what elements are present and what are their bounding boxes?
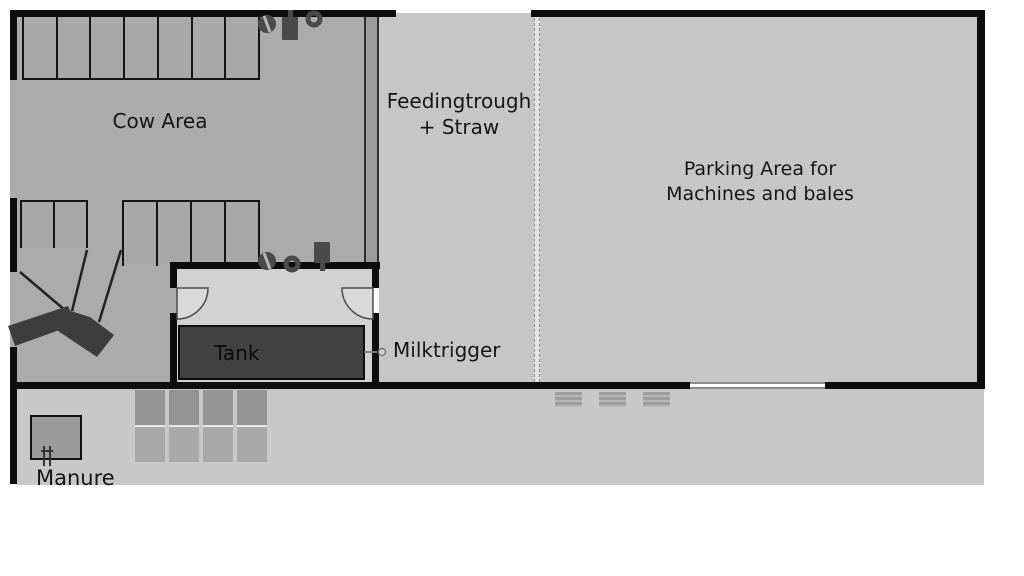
stall-cell xyxy=(224,17,258,78)
feeding-area-label-line1: Feedingtrough xyxy=(379,88,539,114)
parking-area-label-line2: Machines and bales xyxy=(590,182,930,207)
stall-cell xyxy=(191,17,225,78)
bale-col xyxy=(237,390,267,462)
parking-area-label: Parking Area for Machines and bales xyxy=(590,157,930,206)
stall-cell xyxy=(156,202,190,266)
stall-cell xyxy=(157,17,191,78)
bale-stack-strip xyxy=(135,390,267,462)
outer-wall-left-lower xyxy=(10,347,17,484)
tank-room-right-wall xyxy=(372,313,379,383)
milk-tank: Tank xyxy=(178,325,365,380)
manure-pit xyxy=(30,415,82,460)
feeding-area-label: Feedingtrough + Straw xyxy=(379,88,539,140)
feeding-area-label-line2: + Straw xyxy=(379,114,539,140)
outer-wall-left-middle xyxy=(10,198,17,272)
parking-boundary-dashed-line xyxy=(534,13,540,382)
outer-wall-top-right xyxy=(531,10,985,17)
sliding-door-opening xyxy=(690,382,825,389)
stall-row-bottom-right xyxy=(122,200,260,266)
stall-cell xyxy=(124,202,156,266)
floor-plan: Tank Cow Area Feedingtrough + Straw Park… xyxy=(0,0,1024,576)
outer-wall-bottom-left xyxy=(10,382,690,389)
milktrigger-label: Milktrigger xyxy=(393,337,501,363)
stall-row-top xyxy=(22,17,260,80)
bale-col xyxy=(203,390,233,462)
step-rect xyxy=(555,392,582,407)
outer-wall-top-left xyxy=(10,10,396,17)
outer-wall-left-upper xyxy=(10,10,17,80)
tank-room-top-wall xyxy=(170,262,380,269)
stall-cell xyxy=(224,202,258,266)
parking-markers xyxy=(555,392,670,407)
stall-row-bottom-left xyxy=(20,200,88,248)
outer-wall-right xyxy=(977,10,985,389)
outer-wall-bottom-right xyxy=(825,382,985,389)
step-rect xyxy=(599,392,626,407)
parking-area-label-line1: Parking Area for xyxy=(590,157,930,182)
stall-cell xyxy=(190,202,224,266)
stall-cell xyxy=(56,17,90,78)
feeding-area xyxy=(379,13,536,382)
bale-col xyxy=(169,390,199,462)
tank-room-right-wall xyxy=(372,262,379,288)
stall-cell xyxy=(53,202,86,248)
stall-cell xyxy=(89,17,123,78)
cow-area-label: Cow Area xyxy=(60,108,260,134)
stall-cell xyxy=(123,17,157,78)
stall-cell xyxy=(22,202,53,248)
stall-cell xyxy=(24,17,56,78)
step-rect xyxy=(643,392,670,407)
tank-room-left-wall xyxy=(170,313,177,383)
bale-col xyxy=(135,390,165,462)
tank-room-left-wall xyxy=(170,262,177,288)
tank-label: Tank xyxy=(180,340,259,366)
feeding-fence-wall xyxy=(364,13,379,263)
manure-label: Manure xyxy=(36,465,115,492)
